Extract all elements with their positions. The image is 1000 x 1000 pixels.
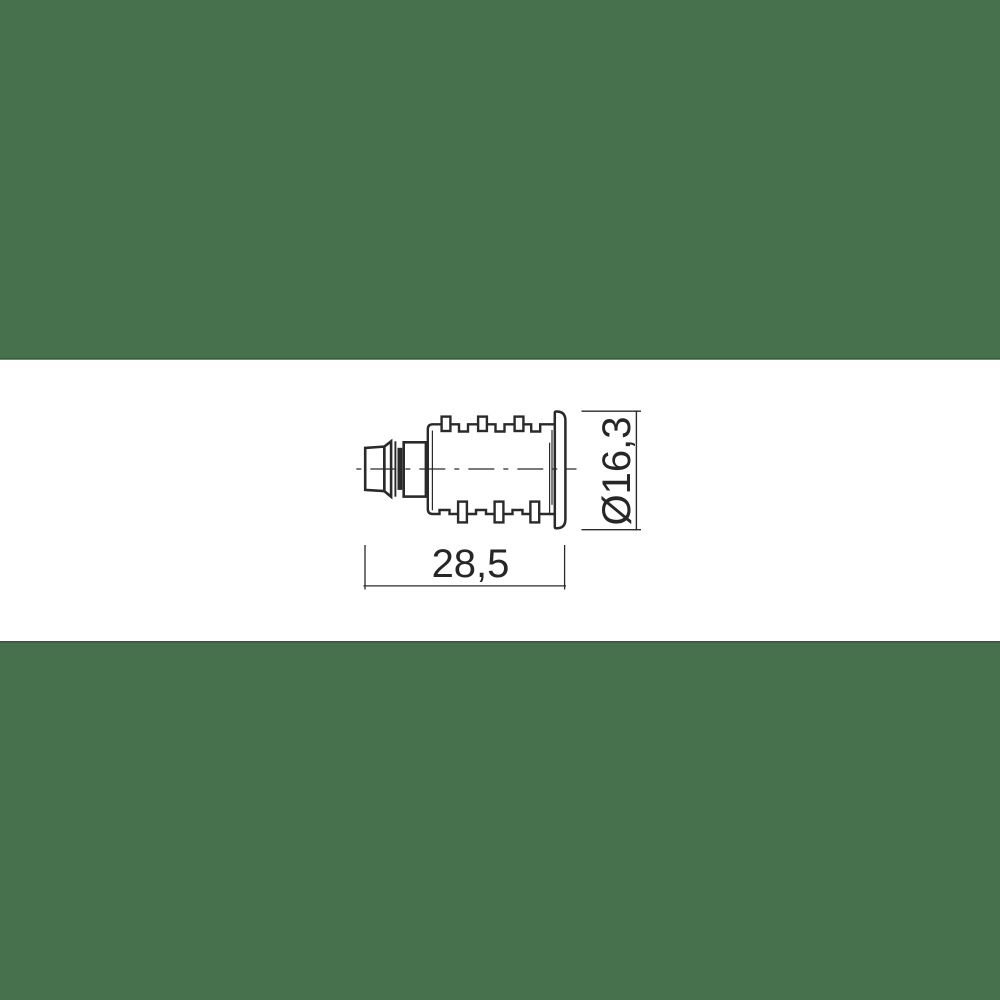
svg-text:28,5: 28,5	[432, 542, 510, 586]
svg-text:Ø16,3: Ø16,3	[595, 417, 639, 526]
